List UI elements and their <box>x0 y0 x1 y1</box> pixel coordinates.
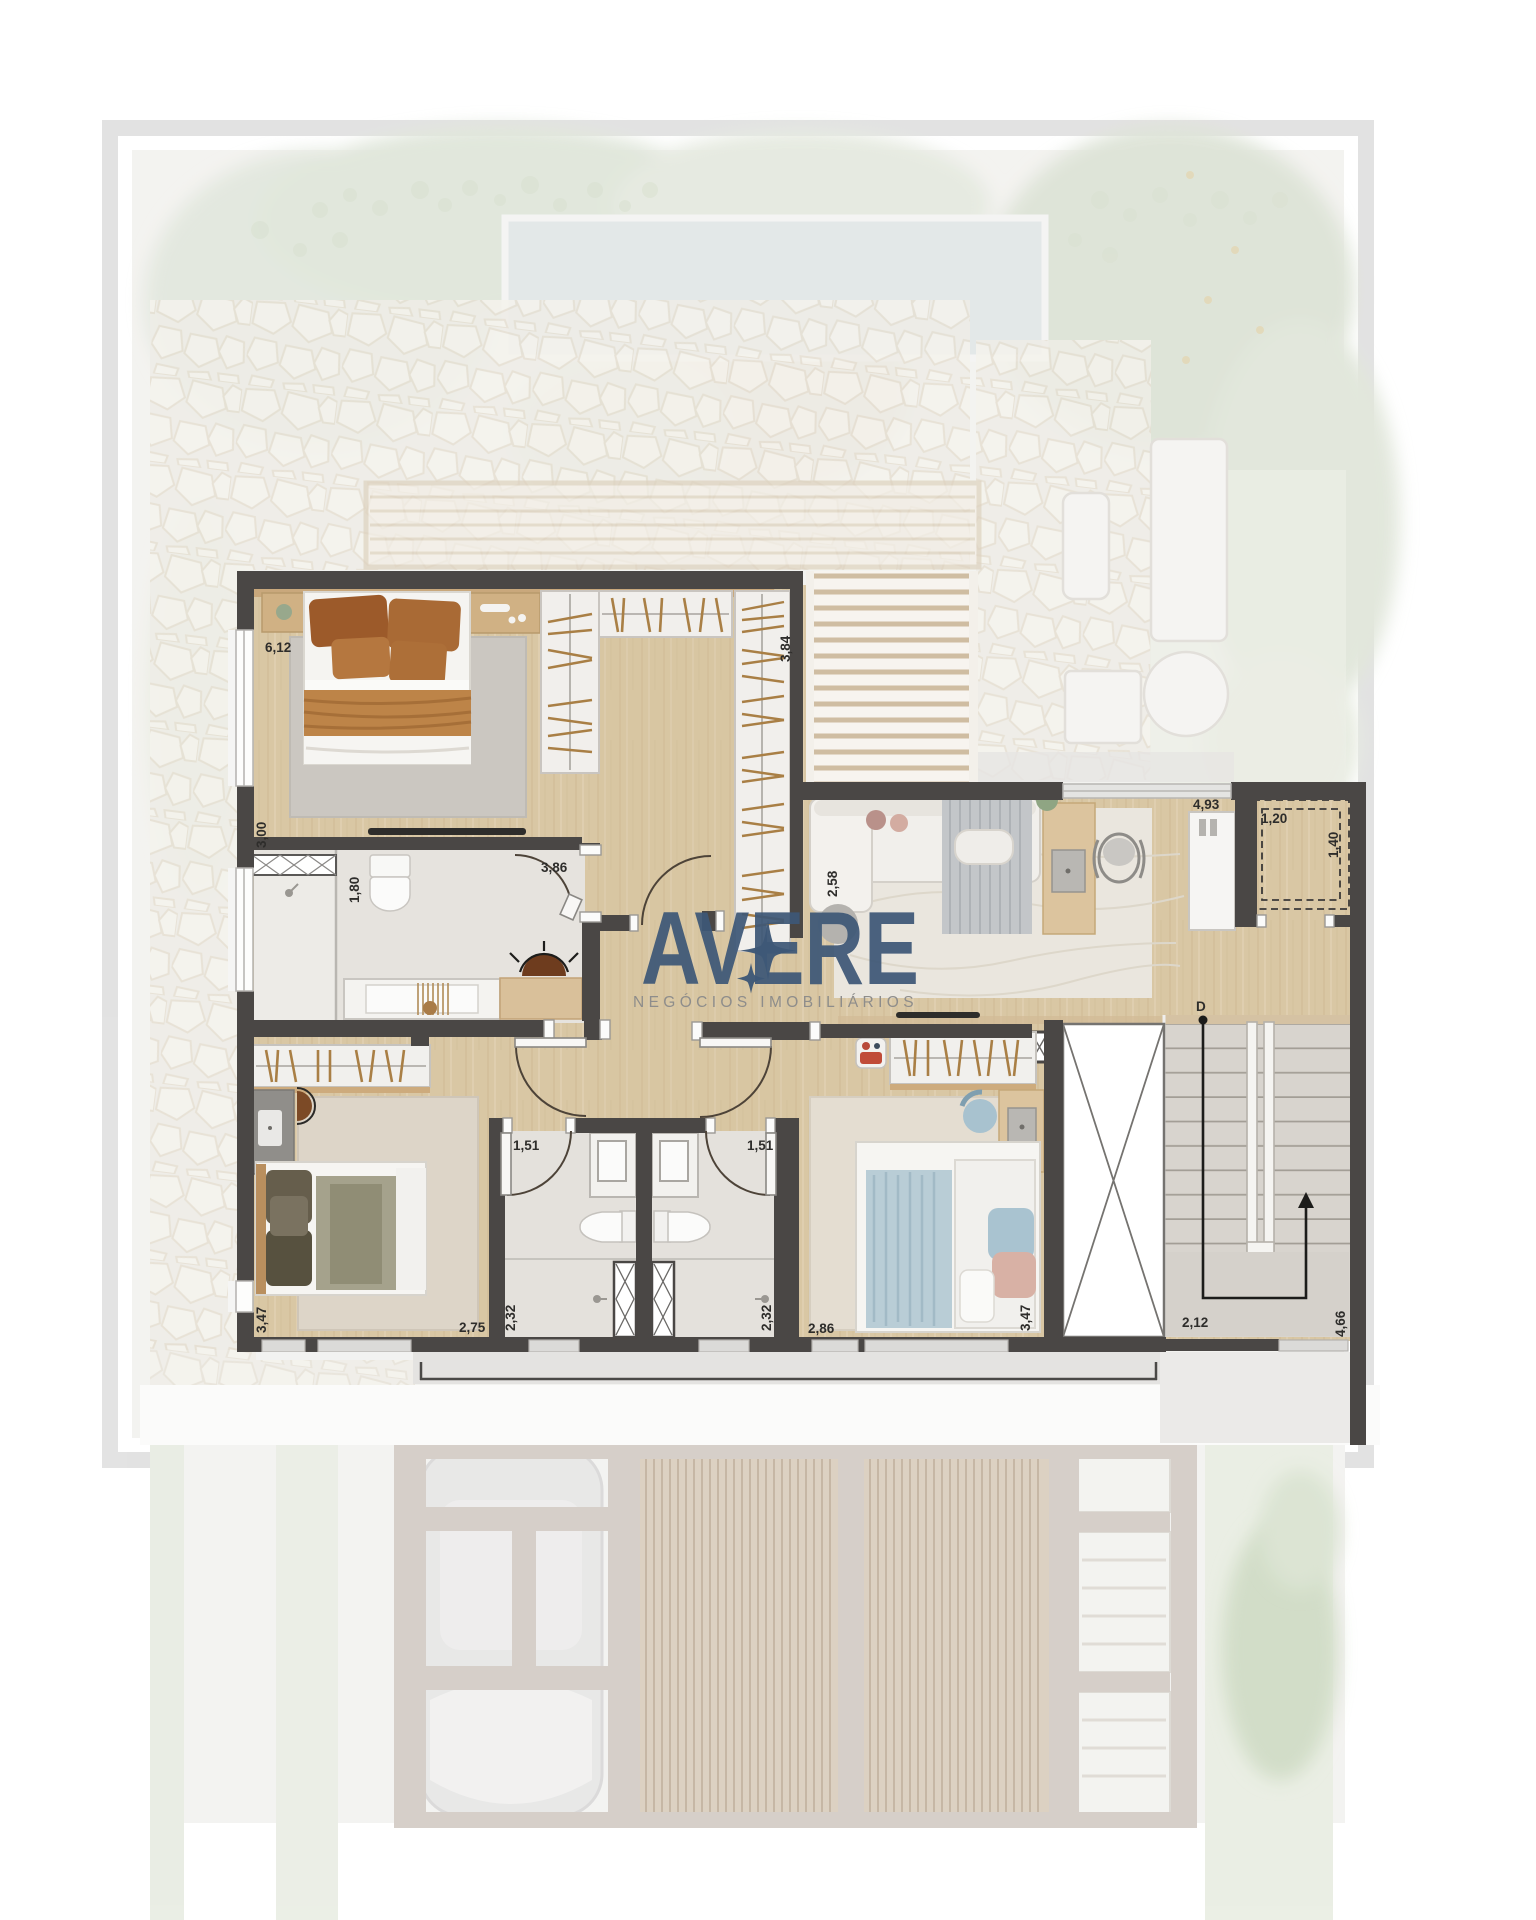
svg-text:1,51: 1,51 <box>513 1138 540 1153</box>
svg-text:3,47: 3,47 <box>254 1307 269 1333</box>
svg-text:1,20: 1,20 <box>1261 811 1287 826</box>
svg-text:2,75: 2,75 <box>459 1320 486 1335</box>
svg-text:D: D <box>1196 999 1206 1014</box>
svg-text:2,32: 2,32 <box>759 1305 774 1331</box>
svg-text:1,40: 1,40 <box>1326 832 1341 858</box>
svg-text:4,93: 4,93 <box>1193 797 1220 812</box>
svg-text:1,51: 1,51 <box>747 1138 774 1153</box>
svg-text:2,12: 2,12 <box>1182 1315 1208 1330</box>
svg-text:4,66: 4,66 <box>1333 1310 1348 1337</box>
svg-text:2,86: 2,86 <box>808 1321 835 1336</box>
svg-text:1,80: 1,80 <box>347 877 362 903</box>
svg-text:3,00: 3,00 <box>254 822 269 848</box>
svg-text:NEGÓCIOS IMOBILIÁRIOS: NEGÓCIOS IMOBILIÁRIOS <box>633 994 917 1011</box>
svg-text:3,84: 3,84 <box>778 635 793 662</box>
svg-text:3,86: 3,86 <box>541 860 568 875</box>
svg-text:6,12: 6,12 <box>265 640 291 655</box>
svg-text:2,32: 2,32 <box>503 1305 518 1331</box>
svg-text:3,47: 3,47 <box>1018 1305 1033 1331</box>
